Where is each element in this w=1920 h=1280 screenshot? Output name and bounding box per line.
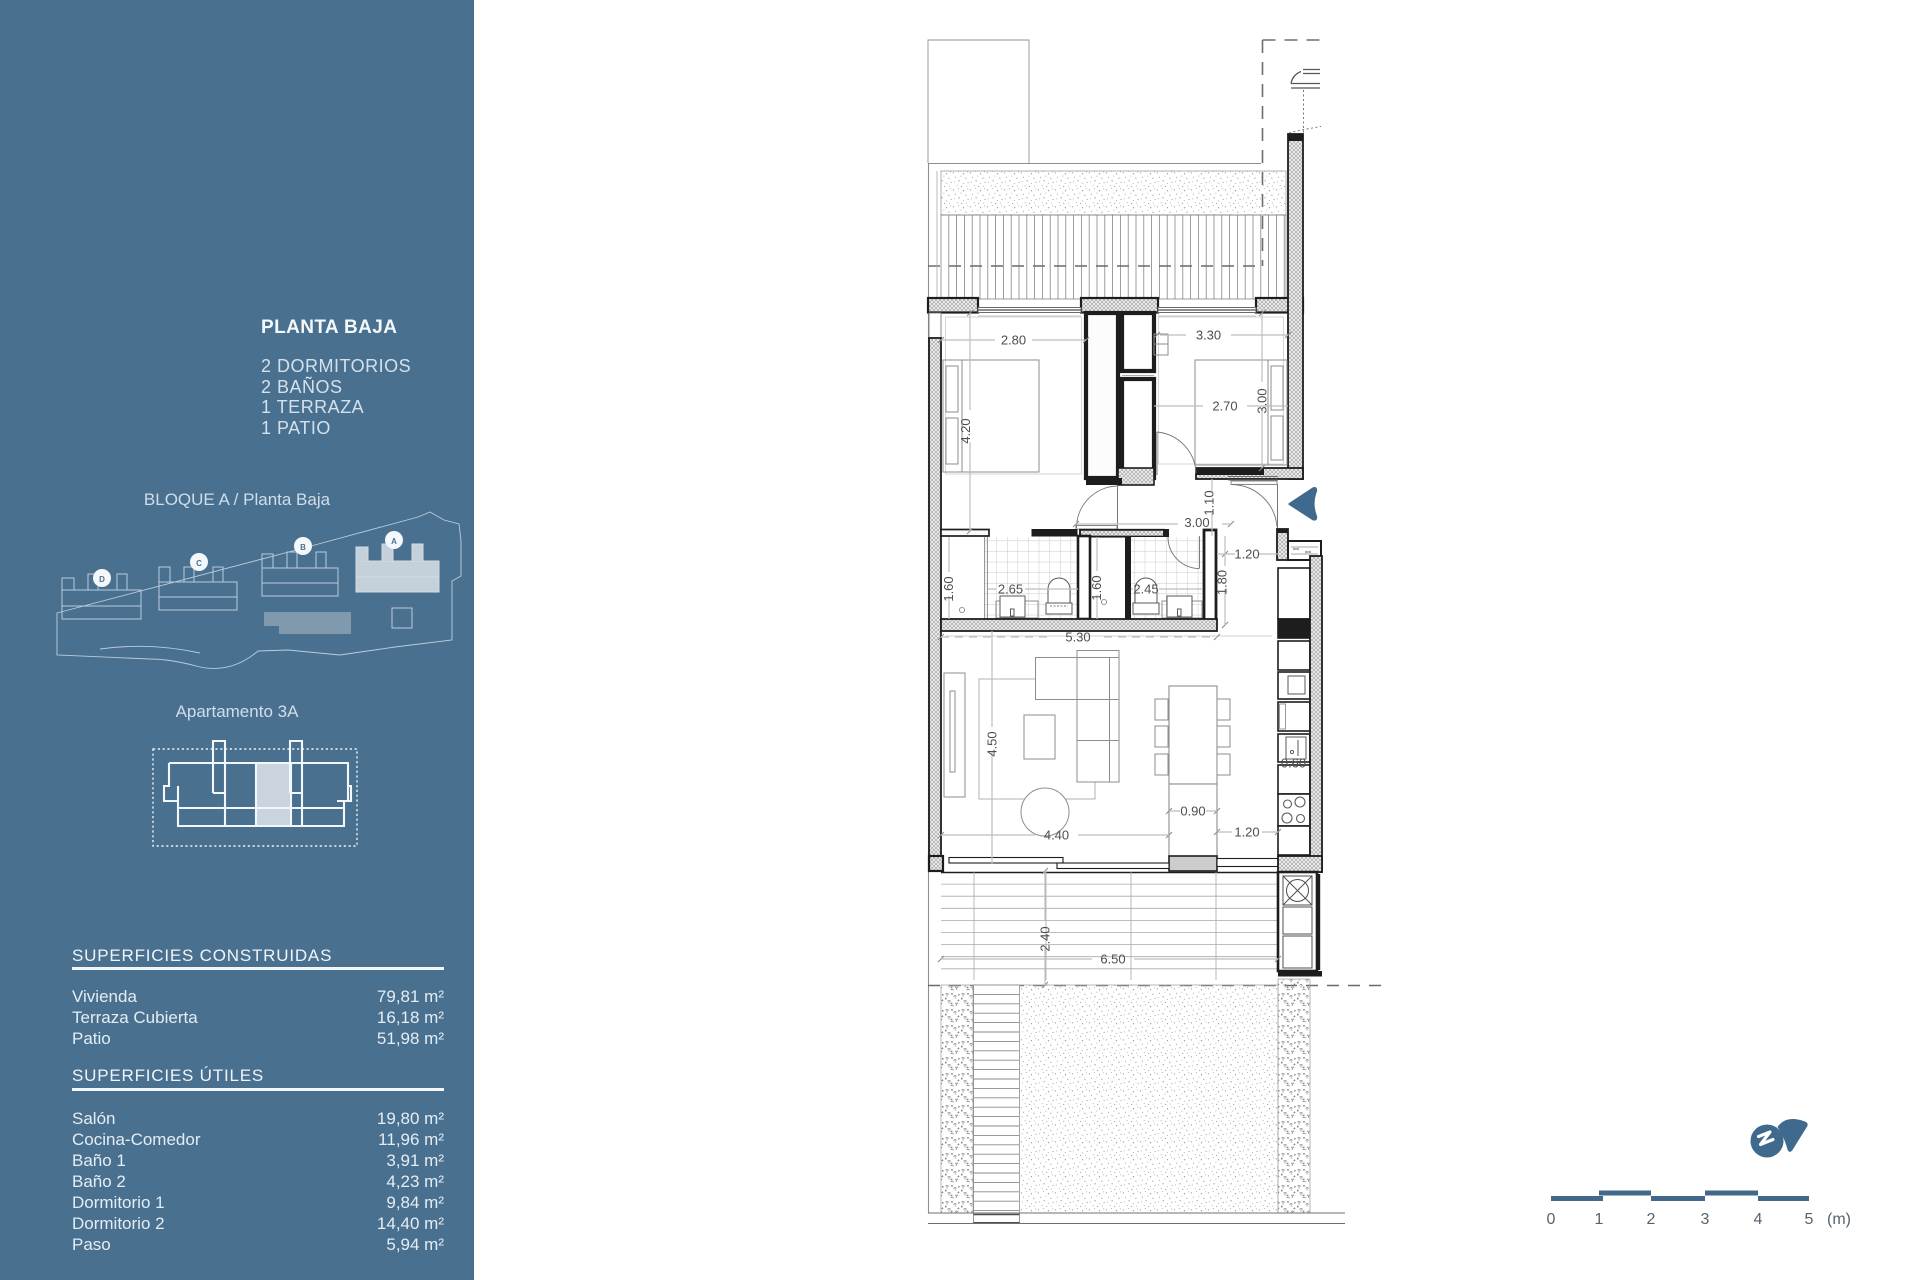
svg-text:0.90: 0.90	[1180, 804, 1205, 819]
svg-text:4.50: 4.50	[985, 731, 1000, 756]
svg-text:1.80: 1.80	[1215, 570, 1230, 595]
svg-text:C: C	[196, 559, 202, 568]
svg-text:2.80: 2.80	[1001, 333, 1026, 348]
svg-text:1.20: 1.20	[1234, 547, 1259, 562]
svg-text:2.65: 2.65	[998, 582, 1023, 597]
svg-text:1.60: 1.60	[941, 576, 956, 601]
svg-text:3.00: 3.00	[1255, 388, 1270, 413]
svg-text:5: 5	[1805, 1211, 1814, 1228]
svg-text:B: B	[300, 543, 306, 552]
svg-text:3: 3	[1701, 1211, 1710, 1228]
svg-text:(m): (m)	[1827, 1211, 1851, 1228]
svg-text:0.60: 0.60	[1281, 756, 1306, 771]
svg-text:3.00: 3.00	[1184, 515, 1209, 530]
svg-text:2.70: 2.70	[1212, 399, 1237, 414]
svg-text:6.50: 6.50	[1100, 952, 1125, 967]
svg-text:A: A	[391, 537, 397, 546]
svg-text:D: D	[99, 575, 105, 584]
svg-text:1.20: 1.20	[1234, 825, 1259, 840]
svg-text:4.40: 4.40	[1044, 828, 1069, 843]
svg-text:3.30: 3.30	[1196, 328, 1221, 343]
svg-text:2: 2	[1647, 1211, 1656, 1228]
svg-text:0: 0	[1547, 1211, 1556, 1228]
svg-text:1: 1	[1595, 1211, 1604, 1228]
svg-text:1.10: 1.10	[1202, 490, 1217, 515]
svg-text:4.20: 4.20	[958, 418, 973, 443]
svg-text:5.30: 5.30	[1065, 630, 1090, 645]
svg-text:4: 4	[1754, 1211, 1763, 1228]
svg-text:1.60: 1.60	[1089, 575, 1104, 600]
svg-text:2.40: 2.40	[1038, 926, 1053, 951]
svg-text:2.45: 2.45	[1133, 582, 1158, 597]
